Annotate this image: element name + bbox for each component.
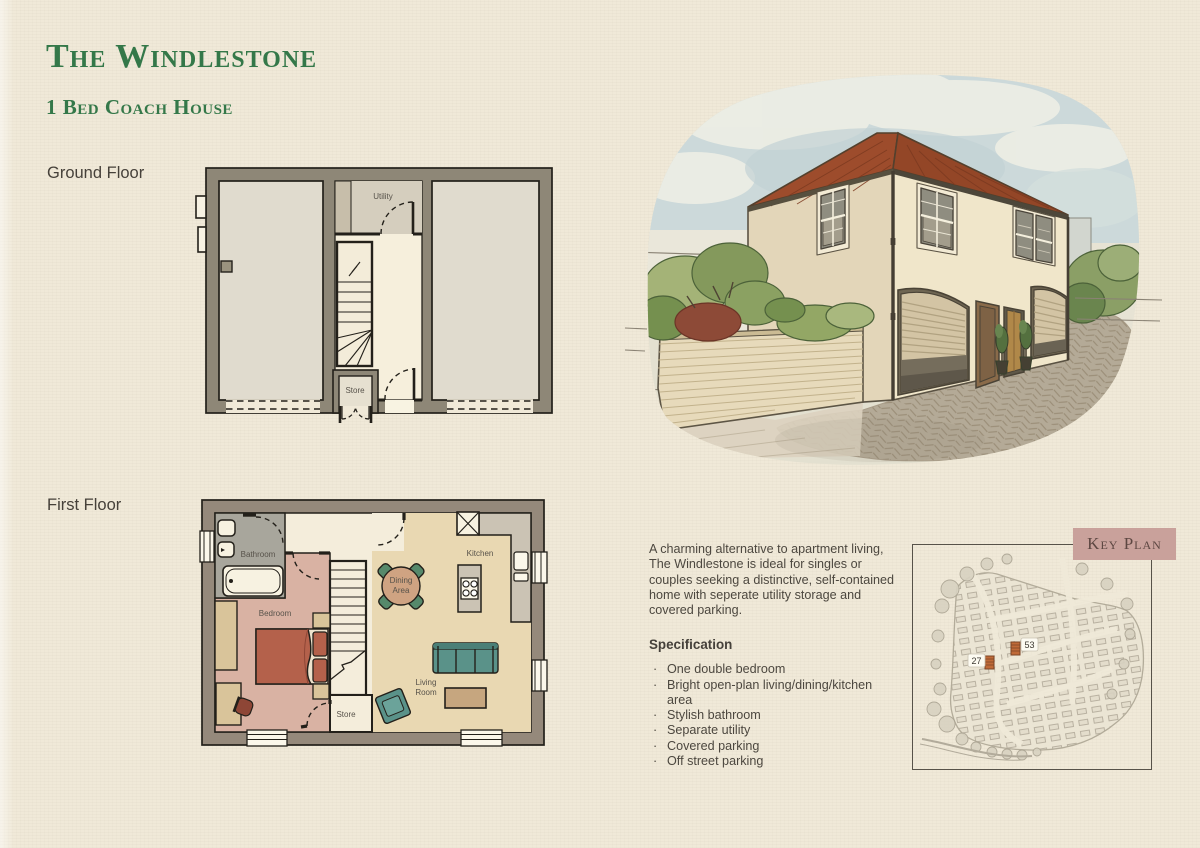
svg-text:Bathroom: Bathroom — [241, 550, 276, 559]
svg-text:Store: Store — [345, 386, 365, 395]
svg-text:Kitchen: Kitchen — [467, 549, 494, 558]
svg-text:Store: Store — [336, 710, 356, 719]
svg-text:Living: Living — [416, 678, 437, 687]
svg-text:Area: Area — [393, 586, 410, 595]
svg-text:Dining: Dining — [390, 576, 413, 585]
svg-text:Bedroom: Bedroom — [259, 609, 292, 618]
svg-text:Utility: Utility — [373, 192, 393, 201]
svg-text:Room: Room — [415, 688, 437, 697]
